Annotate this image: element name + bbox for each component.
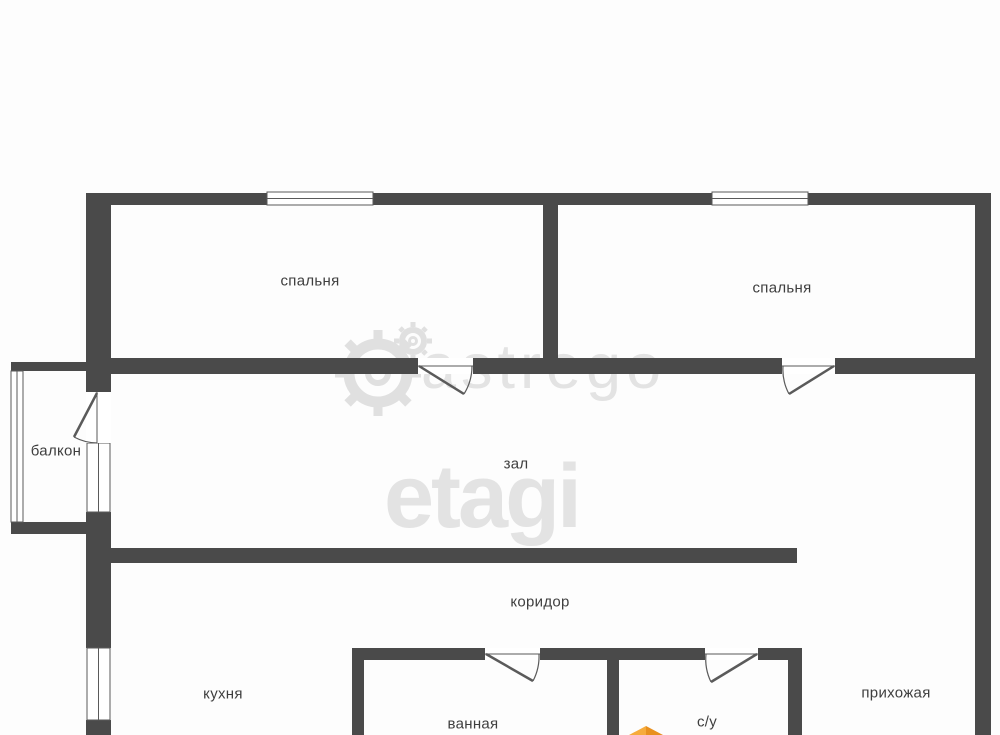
- room-label-hall: зал: [504, 456, 529, 473]
- room-label-entry: прихожая: [861, 685, 930, 702]
- room-label-bathroom: ванная: [448, 716, 499, 733]
- room-label-bedroom1: спальня: [280, 273, 339, 290]
- room-label-balcony: балкон: [31, 443, 82, 460]
- room-label-wc: с/у: [697, 714, 717, 731]
- room-label-corridor: коридор: [510, 594, 569, 611]
- room-label-kitchen: кухня: [203, 686, 243, 703]
- room-labels: спальня спальня балкон зал коридор кухня…: [0, 0, 1000, 735]
- floor-plan-image: astrego etagi: [0, 0, 1000, 735]
- room-label-bedroom2: спальня: [752, 280, 811, 297]
